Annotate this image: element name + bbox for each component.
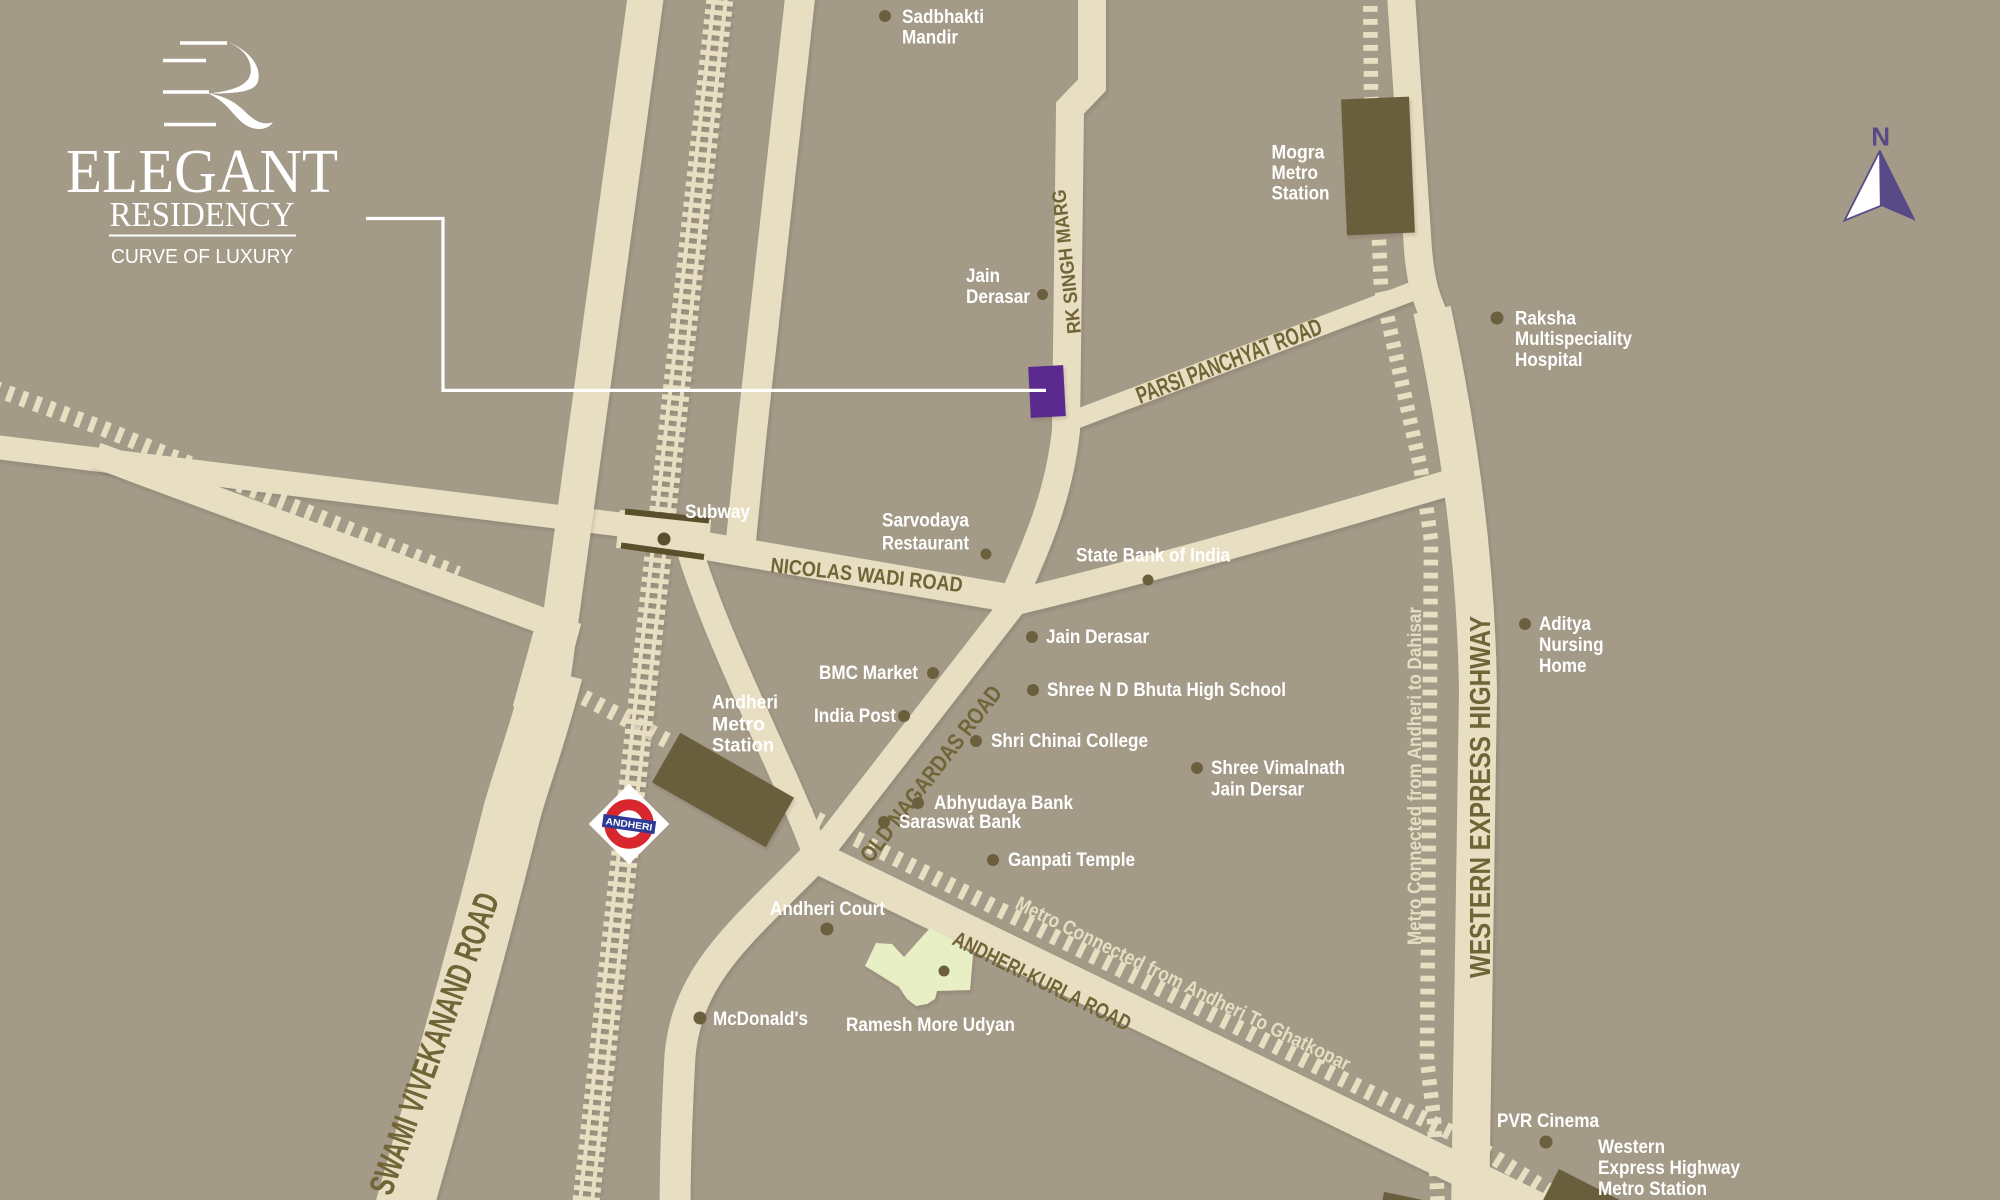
svg-text:Aditya: Aditya <box>1539 614 1591 635</box>
svg-text:Ramesh More Udyan: Ramesh More Udyan <box>846 1015 1015 1036</box>
svg-text:Mandir: Mandir <box>902 28 959 49</box>
svg-text:Saraswat Bank: Saraswat Bank <box>899 812 1021 833</box>
svg-text:Shree N D Bhuta High School: Shree N D Bhuta High School <box>1047 680 1286 701</box>
svg-text:India Post: India Post <box>814 706 897 727</box>
svg-text:Restaurant: Restaurant <box>882 533 970 554</box>
svg-text:Mogra: Mogra <box>1272 142 1325 163</box>
svg-text:CURVE OF LUXURY: CURVE OF LUXURY <box>111 246 293 268</box>
svg-text:Subway: Subway <box>685 502 750 523</box>
svg-text:Shree Vimalnath: Shree Vimalnath <box>1211 758 1345 779</box>
svg-text:McDonald's: McDonald's <box>713 1009 808 1030</box>
svg-text:Station: Station <box>712 736 774 757</box>
svg-text:BMC Market: BMC Market <box>819 663 919 684</box>
svg-text:Abhyudaya Bank: Abhyudaya Bank <box>934 793 1073 814</box>
svg-text:Sarvodaya: Sarvodaya <box>882 510 969 531</box>
svg-text:Metro Connected from Andheri t: Metro Connected from Andheri to Dahisar <box>1405 606 1426 945</box>
svg-text:WESTERN EXPRESS HIGHWAY: WESTERN EXPRESS HIGHWAY <box>1465 616 1497 978</box>
svg-text:Express Highway: Express Highway <box>1598 1158 1740 1179</box>
svg-text:Sadbhakti: Sadbhakti <box>902 7 984 28</box>
svg-text:RESIDENCY: RESIDENCY <box>110 195 295 234</box>
svg-text:Andheri: Andheri <box>712 693 778 714</box>
svg-text:State Bank of India: State Bank of India <box>1076 546 1230 567</box>
svg-text:Metro Station: Metro Station <box>1598 1179 1707 1200</box>
svg-text:Ganpati Temple: Ganpati Temple <box>1008 850 1135 871</box>
svg-text:Jain Dersar: Jain Dersar <box>1211 780 1305 801</box>
svg-text:Andheri Court: Andheri Court <box>770 899 886 920</box>
svg-text:Station: Station <box>1272 184 1330 205</box>
svg-text:Derasar: Derasar <box>966 287 1031 308</box>
svg-text:Western: Western <box>1598 1137 1665 1158</box>
svg-text:Multispeciality: Multispeciality <box>1515 329 1632 350</box>
svg-text:Home: Home <box>1539 656 1587 677</box>
svg-text:Metro: Metro <box>712 715 765 736</box>
svg-text:Raksha: Raksha <box>1515 308 1576 329</box>
svg-text:Jain: Jain <box>966 266 1000 287</box>
svg-text:Metro: Metro <box>1272 163 1319 184</box>
svg-text:Jain Derasar: Jain Derasar <box>1046 627 1150 648</box>
svg-text:Shri Chinai College: Shri Chinai College <box>991 731 1148 752</box>
svg-text:Hospital: Hospital <box>1515 350 1583 371</box>
svg-text:Nursing: Nursing <box>1539 635 1604 656</box>
svg-text:PVR Cinema: PVR Cinema <box>1497 1111 1599 1132</box>
svg-text:N: N <box>1871 122 1890 152</box>
